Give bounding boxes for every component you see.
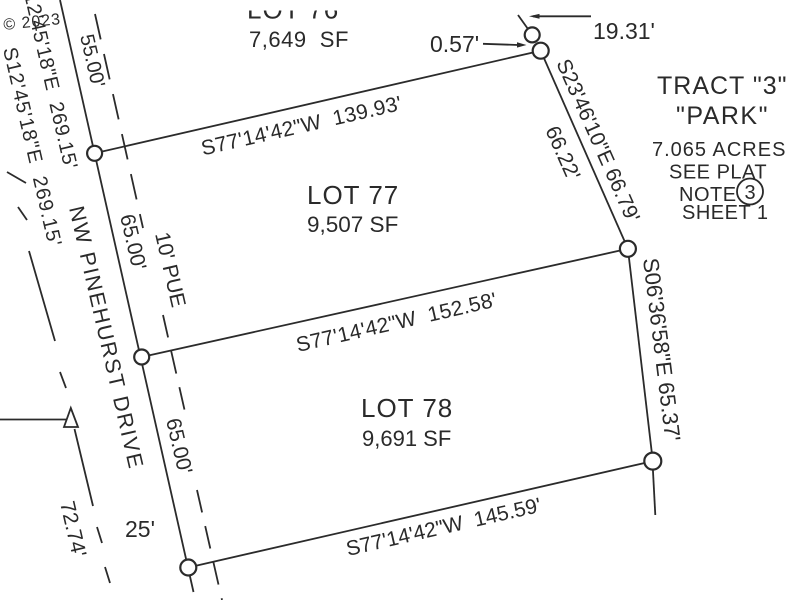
- svg-text:19.31': 19.31': [593, 18, 655, 44]
- svg-text:9,507 SF: 9,507 SF: [307, 212, 398, 237]
- svg-text:3: 3: [745, 182, 756, 204]
- svg-text:9,691 SF: 9,691 SF: [362, 426, 451, 451]
- svg-text:LOT 77: LOT 77: [307, 180, 399, 210]
- svg-text:SHEET 1: SHEET 1: [682, 202, 769, 224]
- svg-text:25': 25': [125, 516, 155, 542]
- svg-text:SEE PLAT: SEE PLAT: [669, 162, 767, 184]
- svg-text:0.57': 0.57': [430, 31, 479, 57]
- svg-text:LOT 78: LOT 78: [361, 393, 453, 423]
- svg-text:TRACT "3": TRACT "3": [657, 72, 787, 100]
- svg-text:7,649 SF: 7,649 SF: [249, 27, 349, 52]
- svg-text:"PARK": "PARK": [676, 102, 769, 130]
- svg-text:7.065 ACRES: 7.065 ACRES: [652, 139, 786, 161]
